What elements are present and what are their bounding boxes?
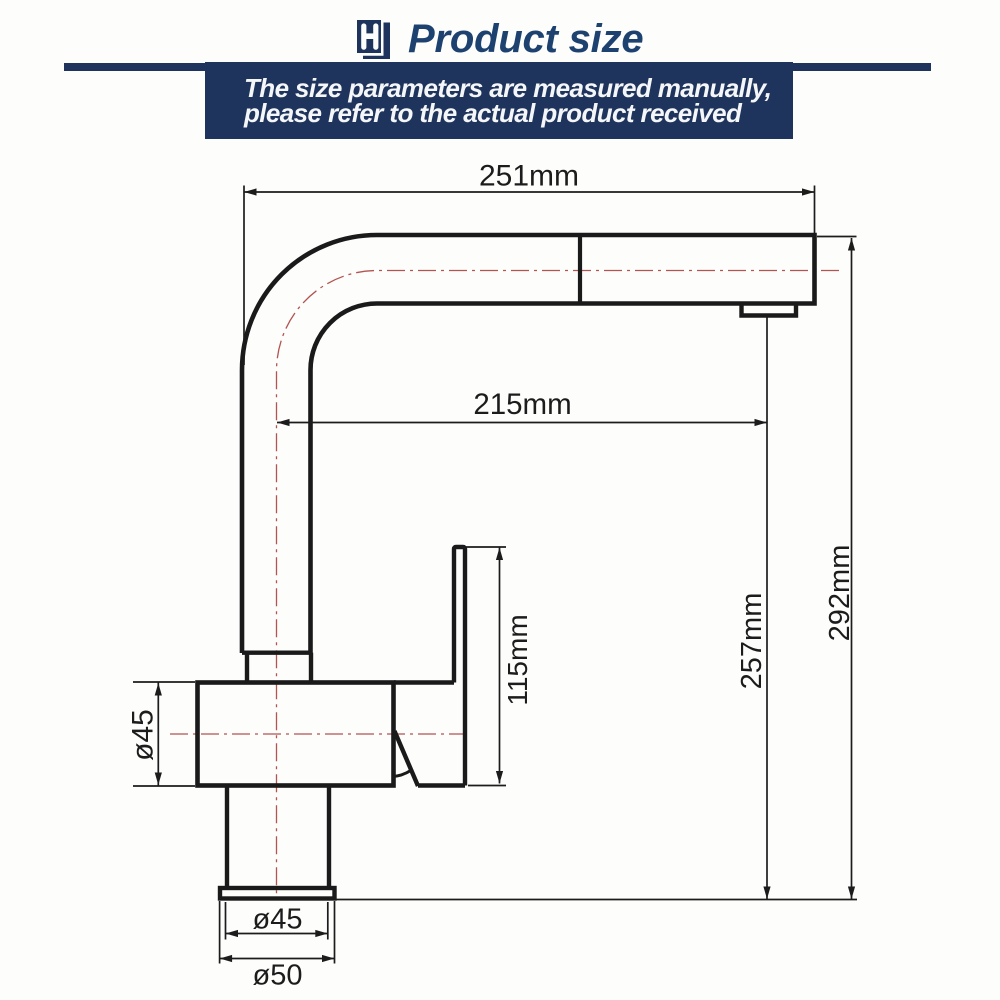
svg-text:ø45: ø45 — [127, 709, 160, 761]
svg-text:292mm: 292mm — [824, 545, 856, 642]
svg-text:ø45: ø45 — [253, 904, 303, 936]
svg-text:257mm: 257mm — [736, 593, 768, 690]
svg-text:215mm: 215mm — [473, 388, 571, 421]
svg-text:115mm: 115mm — [502, 614, 533, 705]
svg-text:251mm: 251mm — [479, 160, 579, 193]
svg-text:ø50: ø50 — [253, 960, 303, 992]
